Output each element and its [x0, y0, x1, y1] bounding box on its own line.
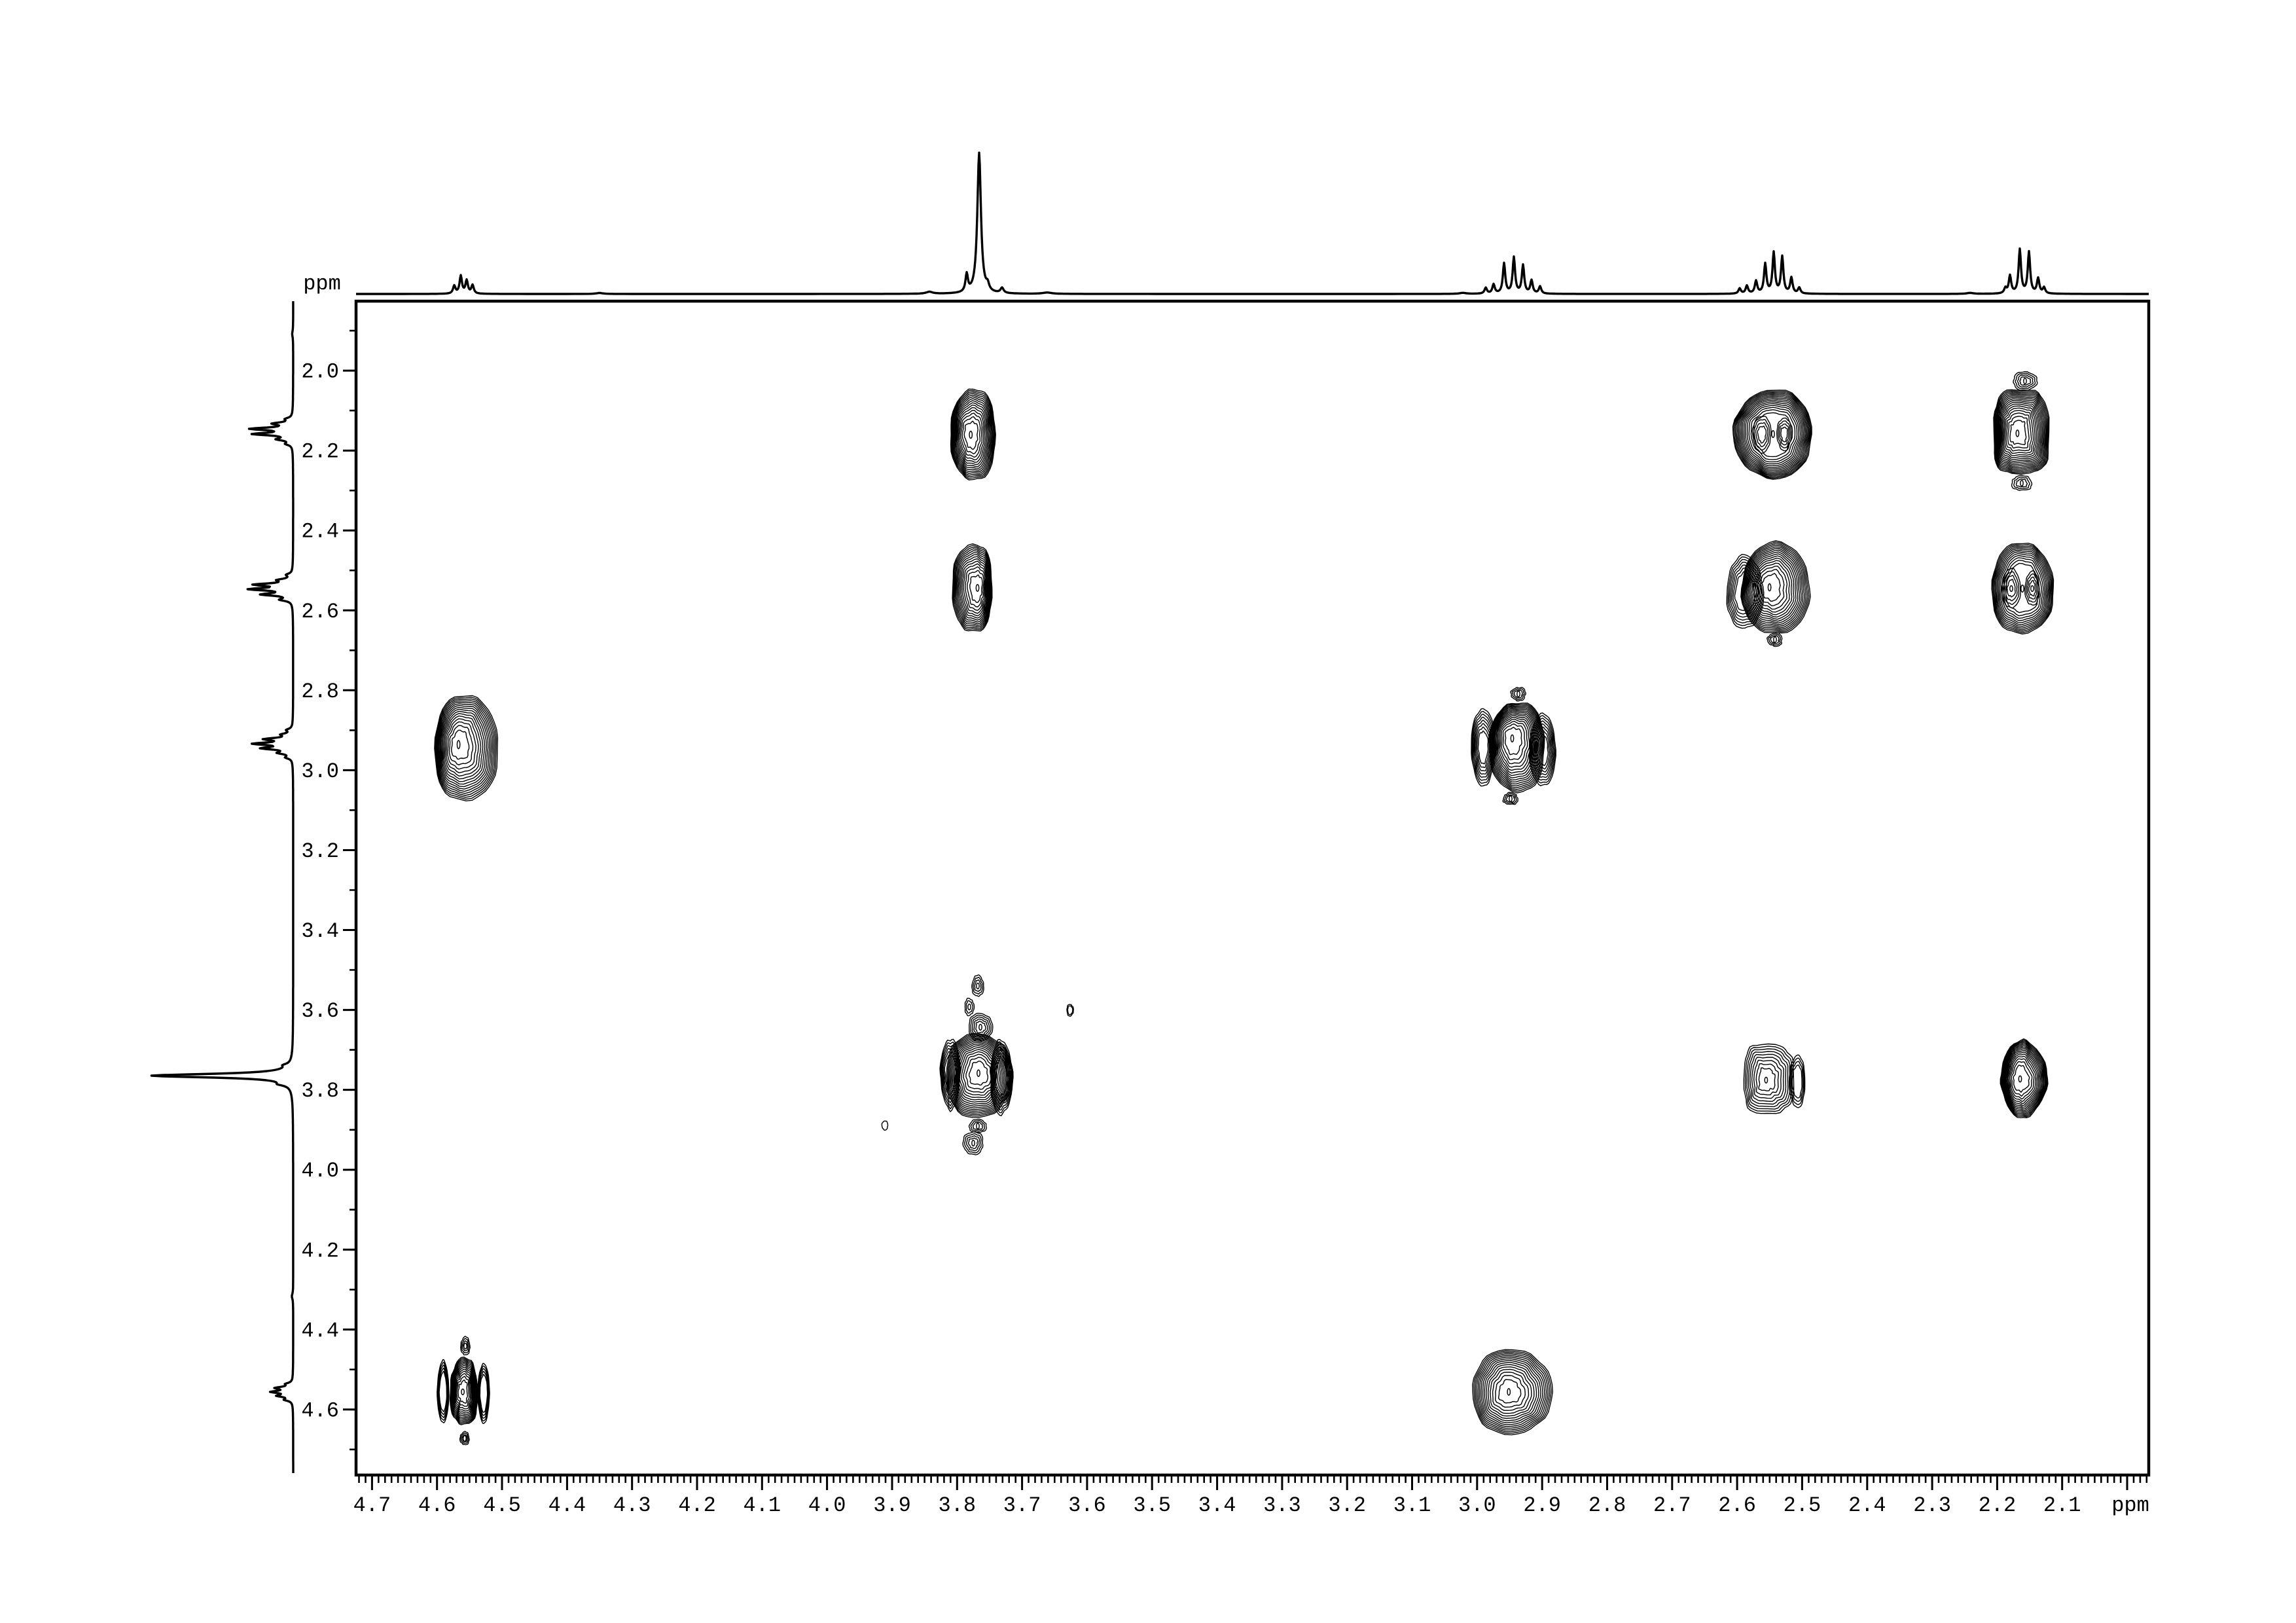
svg-text:4.4: 4.4 [548, 1493, 586, 1518]
svg-text:2.0: 2.0 [301, 360, 339, 384]
svg-text:4.0: 4.0 [808, 1493, 846, 1518]
svg-text:3.7: 3.7 [1003, 1493, 1041, 1518]
svg-text:3.8: 3.8 [938, 1493, 976, 1518]
svg-text:2.6: 2.6 [1718, 1493, 1756, 1518]
svg-text:2.4: 2.4 [301, 520, 339, 544]
svg-text:ppm: ppm [2111, 1493, 2149, 1518]
svg-text:2.9: 2.9 [1523, 1493, 1561, 1518]
svg-text:4.4: 4.4 [301, 1319, 339, 1343]
svg-text:2.7: 2.7 [1653, 1493, 1691, 1518]
svg-text:3.8: 3.8 [301, 1079, 339, 1103]
svg-text:3.2: 3.2 [1328, 1493, 1366, 1518]
svg-text:3.4: 3.4 [301, 919, 339, 943]
svg-text:4.7: 4.7 [353, 1493, 391, 1518]
svg-text:3.6: 3.6 [301, 999, 339, 1023]
svg-text:2.2: 2.2 [301, 440, 339, 464]
svg-text:3.1: 3.1 [1393, 1493, 1431, 1518]
svg-text:4.2: 4.2 [678, 1493, 716, 1518]
svg-text:4.0: 4.0 [301, 1159, 339, 1183]
svg-text:2.8: 2.8 [301, 680, 339, 704]
svg-text:3.4: 3.4 [1198, 1493, 1236, 1518]
svg-text:4.2: 4.2 [301, 1239, 339, 1263]
svg-text:3.6: 3.6 [1068, 1493, 1106, 1518]
svg-text:4.1: 4.1 [743, 1493, 781, 1518]
svg-text:2.1: 2.1 [2043, 1493, 2081, 1518]
svg-text:2.4: 2.4 [1848, 1493, 1886, 1518]
svg-text:2.5: 2.5 [1784, 1493, 1821, 1518]
svg-text:4.3: 4.3 [613, 1493, 651, 1518]
svg-text:4.5: 4.5 [483, 1493, 521, 1518]
svg-text:ppm: ppm [303, 272, 341, 296]
svg-text:2.6: 2.6 [301, 600, 339, 624]
svg-text:4.6: 4.6 [418, 1493, 456, 1518]
svg-text:2.3: 2.3 [1913, 1493, 1951, 1518]
svg-text:3.2: 3.2 [301, 839, 339, 864]
svg-text:2.2: 2.2 [1979, 1493, 2017, 1518]
svg-text:3.9: 3.9 [873, 1493, 911, 1518]
svg-text:3.3: 3.3 [1263, 1493, 1301, 1518]
svg-text:4.6: 4.6 [301, 1398, 339, 1423]
svg-text:3.0: 3.0 [301, 759, 339, 784]
svg-text:3.0: 3.0 [1458, 1493, 1496, 1518]
svg-text:2.8: 2.8 [1588, 1493, 1626, 1518]
svg-text:3.5: 3.5 [1133, 1493, 1171, 1518]
